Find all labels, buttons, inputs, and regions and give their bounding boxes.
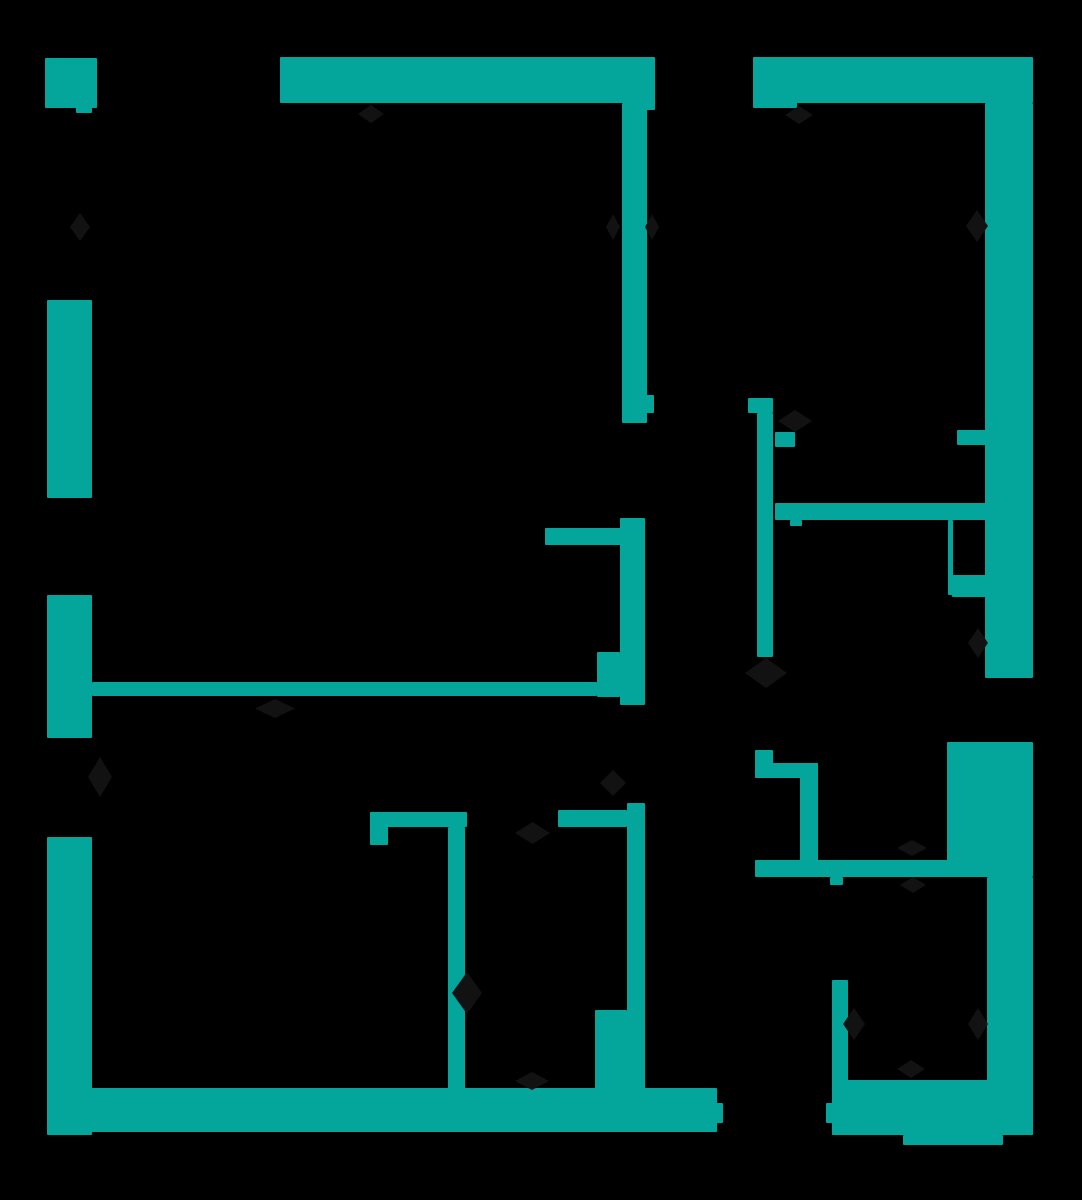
wall-bath-south-wall <box>775 503 987 520</box>
door-swing-symbol-entry-room-east <box>968 1008 988 1040</box>
wall-bottom-wall-east <box>832 1080 1033 1135</box>
wall-hall-south-wall <box>755 860 987 877</box>
wall-bedroom3-east-pier <box>595 1010 627 1095</box>
door-swing-symbol-top-wall-west <box>358 105 384 123</box>
wall-kitchen-stub-wall <box>545 528 623 545</box>
wall-top-wall-east-end-tab <box>753 100 797 108</box>
wall-top-left-corner-block <box>45 58 97 108</box>
door-swing-symbol-hall-south-below <box>900 877 926 893</box>
wall-bath-north-stub-east <box>957 430 987 445</box>
door-swing-symbol-bedroom2-door <box>515 822 550 844</box>
window-break-symbol-bottom-east <box>897 1060 925 1078</box>
door-swing-symbol-hall-east-wall <box>745 658 787 688</box>
door-swing-symbol-hall-south-above <box>897 840 927 856</box>
wall-bedroom2-east-wall <box>448 827 465 1093</box>
wall-right-wall-upper <box>985 103 1033 678</box>
wall-bath-south-wall-nub <box>790 520 802 526</box>
wall-top-left-corner-tail <box>76 103 92 113</box>
wall-bedroom2-north-wall-east <box>558 810 627 827</box>
wall-bottom-wall-west-hinge-nub <box>715 1103 723 1123</box>
door-swing-symbol-living-divider <box>255 699 295 718</box>
wall-shower-block <box>952 575 987 597</box>
wall-bedroom1-east-wall-lower <box>620 518 645 705</box>
wall-bedroom2-north-wall-tab <box>370 812 388 845</box>
door-swing-symbol-left-wall-door <box>88 757 112 797</box>
wall-living-divider-wall <box>92 682 597 696</box>
wall-hall-east-wall <box>757 413 773 657</box>
wall-bedroom3-east-wall <box>627 803 645 1093</box>
wall-left-wall-middle <box>47 595 92 738</box>
wall-bath-north-stub-west <box>775 432 795 447</box>
door-swing-symbol-bedroom3-top <box>600 770 626 796</box>
floorplan-canvas <box>0 0 1082 1200</box>
wall-top-wall-west <box>280 57 655 103</box>
wall-left-wall-upper <box>47 300 92 498</box>
door-swing-symbol-top-wall-east <box>785 106 813 124</box>
wall-entry-room-west-wall <box>832 980 848 1135</box>
window-pinch-symbol-bedroom1-east <box>645 214 659 240</box>
wall-wc-wall-east <box>800 763 818 863</box>
wall-top-wall-east <box>753 57 1033 103</box>
window-break-symbol-left-upper <box>70 213 90 241</box>
wall-bedroom1-east-wall-upper <box>622 103 647 423</box>
wall-right-wall-mid-pier <box>947 742 1033 877</box>
wall-hall-south-wall-tab <box>830 877 843 885</box>
wall-bottom-wall-east-bump <box>903 1135 1003 1145</box>
window-pinch-symbol-bedroom1-west <box>606 214 620 240</box>
wall-hall-junction-pier <box>597 652 620 697</box>
wall-bedroom1-east-wall-tab <box>645 395 654 413</box>
door-swing-symbol-bath-entry <box>778 410 812 432</box>
wall-hall-east-wall-foot <box>748 398 773 413</box>
